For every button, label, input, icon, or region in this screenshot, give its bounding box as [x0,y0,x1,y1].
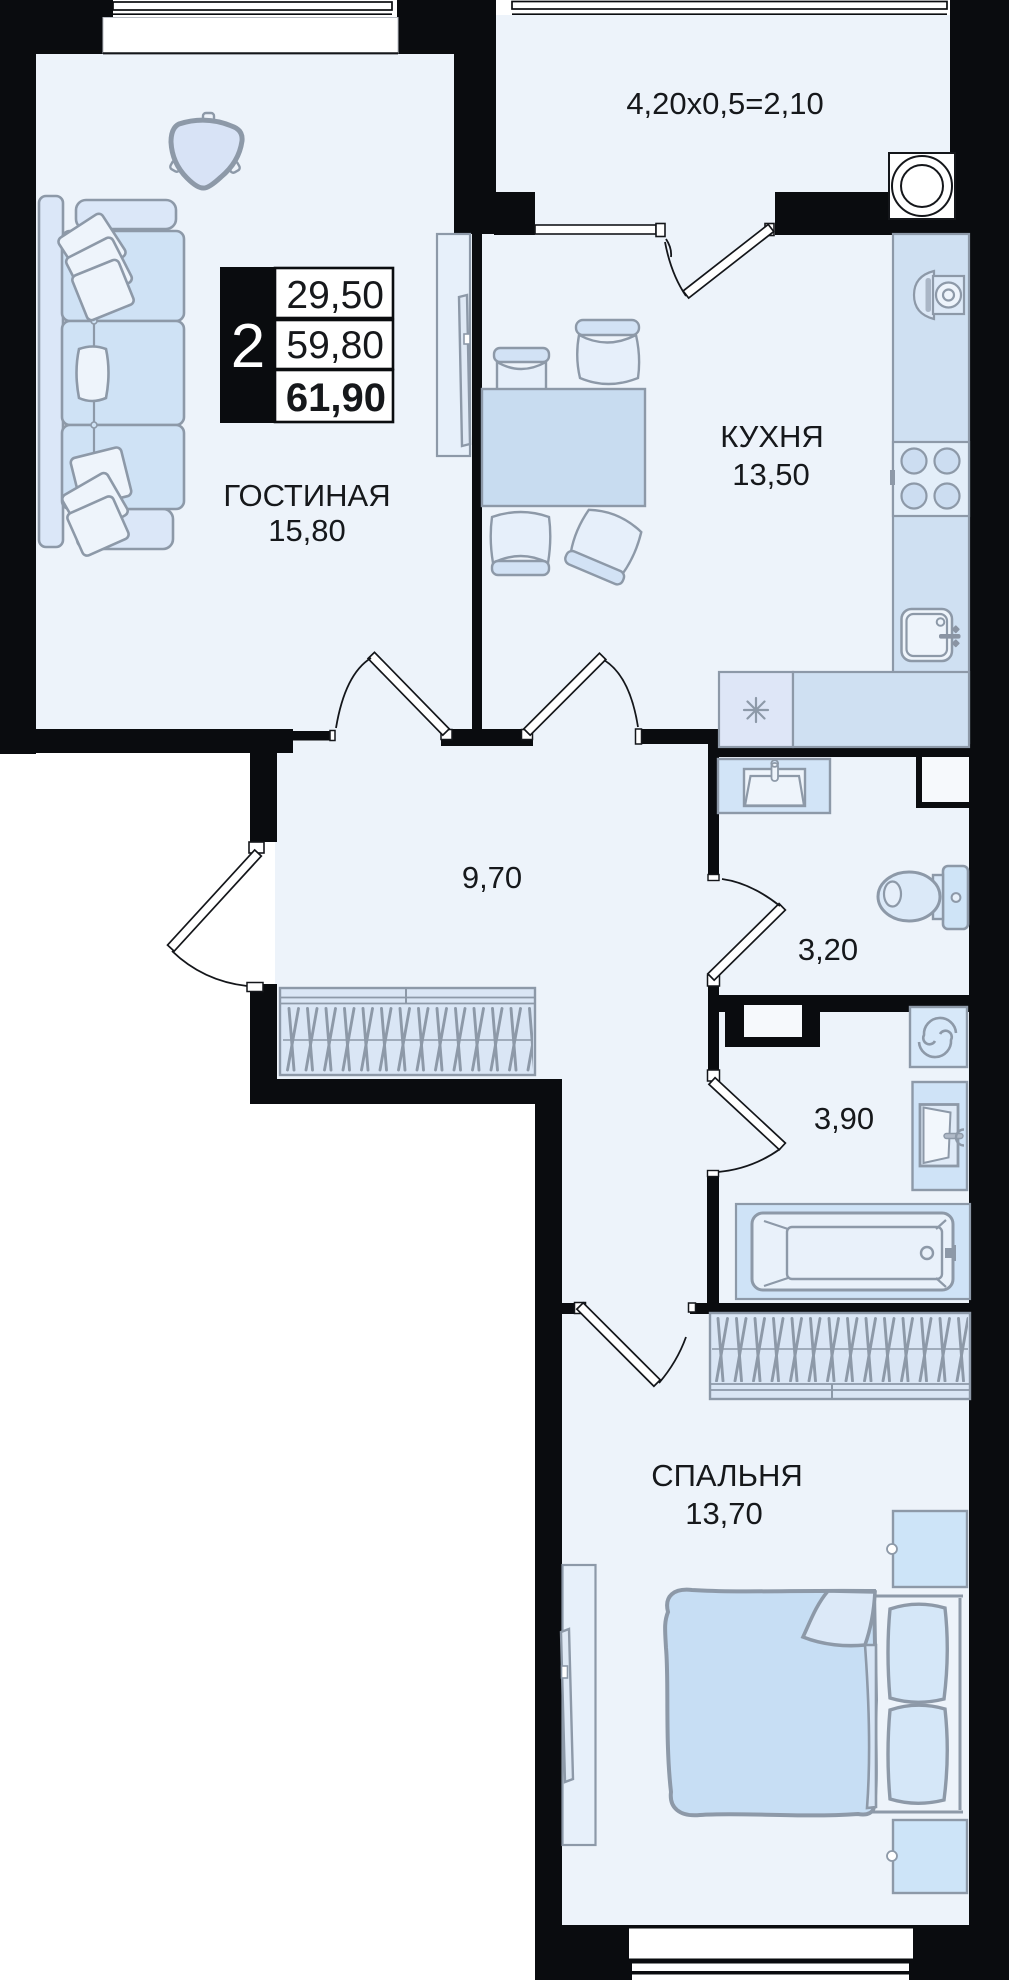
svg-text:4,20х0,5=2,10: 4,20х0,5=2,10 [626,86,823,121]
svg-text:КУХНЯ: КУХНЯ [720,419,824,454]
svg-text:61,90: 61,90 [286,376,386,420]
svg-text:3,20: 3,20 [798,932,858,967]
svg-text:2: 2 [231,312,265,381]
svg-text:15,80: 15,80 [268,513,346,548]
svg-text:ГОСТИНАЯ: ГОСТИНАЯ [223,478,390,513]
svg-text:13,70: 13,70 [685,1496,763,1531]
svg-text:9,70: 9,70 [462,860,522,895]
svg-text:13,50: 13,50 [732,457,810,492]
svg-text:29,50: 29,50 [286,274,384,317]
svg-text:СПАЛЬНЯ: СПАЛЬНЯ [651,1458,803,1493]
svg-text:59,80: 59,80 [286,324,384,367]
svg-text:3,90: 3,90 [814,1101,874,1136]
